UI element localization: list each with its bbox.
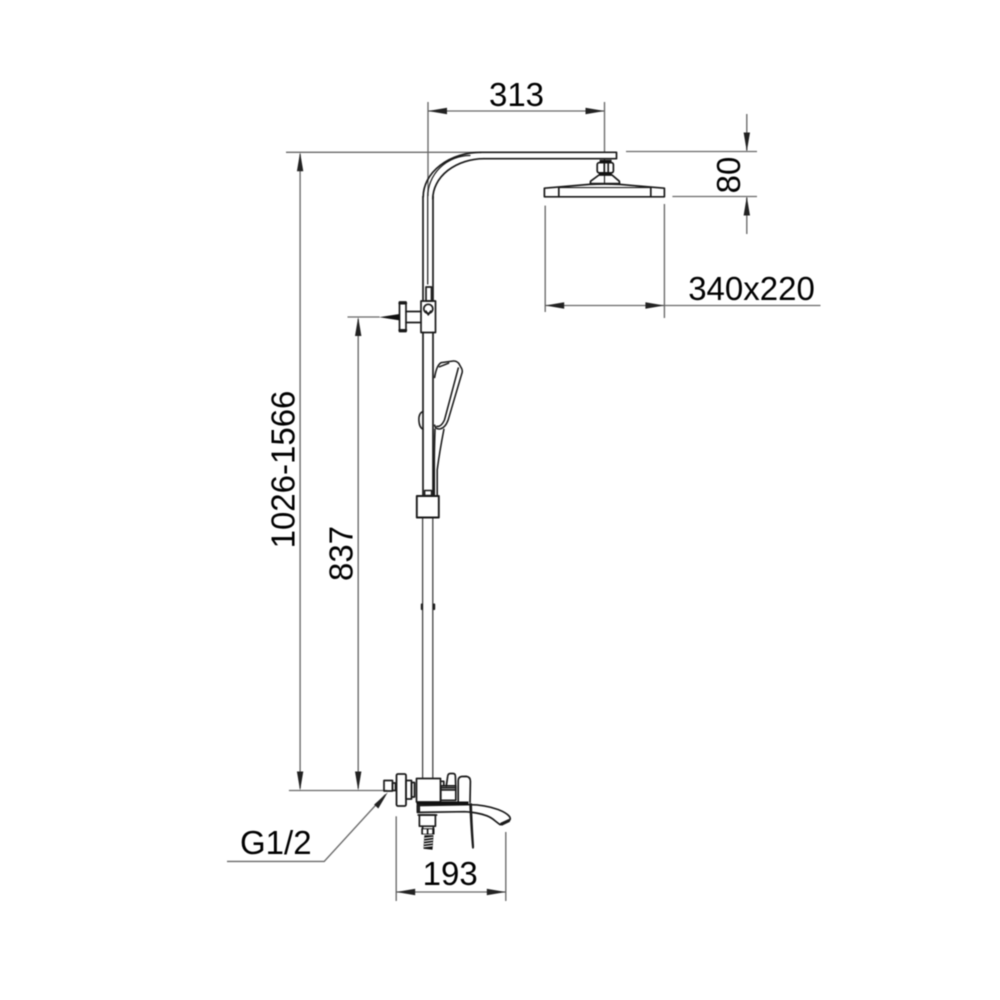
svg-text:313: 313	[489, 76, 544, 113]
svg-text:193: 193	[423, 855, 478, 892]
svg-text:80: 80	[710, 157, 747, 194]
svg-text:G1/2: G1/2	[240, 824, 312, 861]
svg-text:340x220: 340x220	[688, 270, 815, 307]
svg-text:1026-1566: 1026-1566	[265, 391, 302, 549]
svg-text:837: 837	[323, 526, 360, 581]
